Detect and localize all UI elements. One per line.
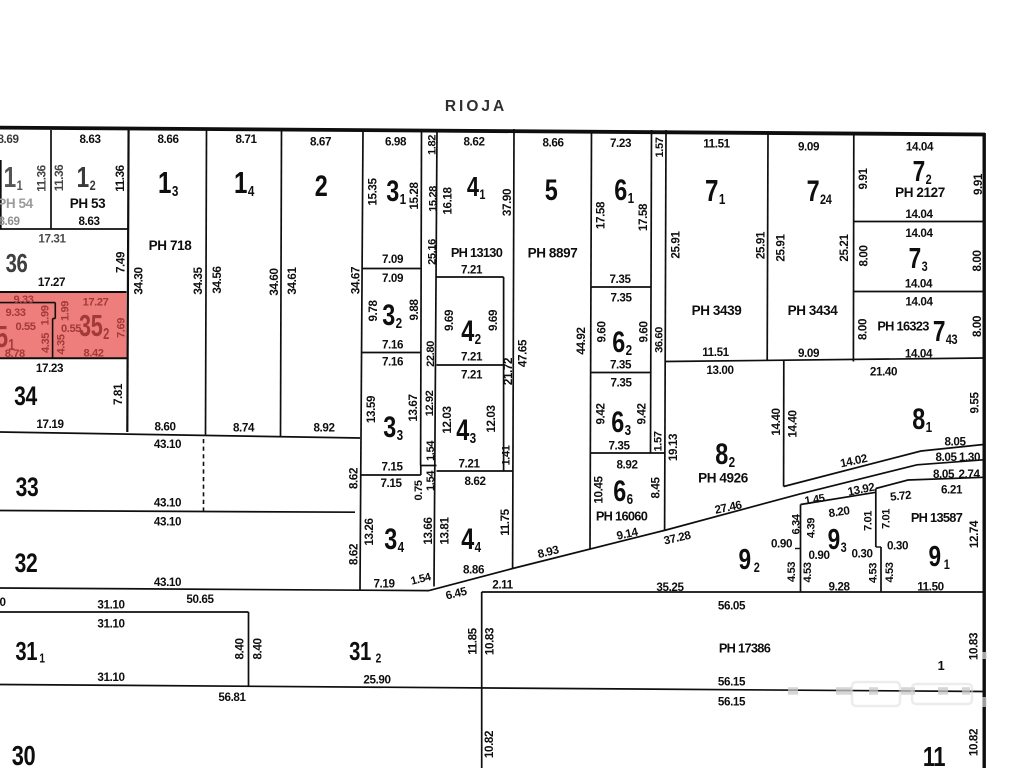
svg-text:50.65: 50.65 bbox=[186, 593, 214, 606]
svg-text:6.98: 6.98 bbox=[385, 136, 407, 149]
svg-text:33: 33 bbox=[16, 473, 39, 503]
svg-text:34.61: 34.61 bbox=[286, 266, 299, 294]
svg-text:9.69: 9.69 bbox=[443, 309, 456, 331]
svg-text:11.75: 11.75 bbox=[499, 508, 512, 535]
svg-text:7.21: 7.21 bbox=[458, 458, 480, 471]
svg-text:17.31: 17.31 bbox=[38, 233, 66, 246]
svg-text:31.10: 31.10 bbox=[97, 671, 124, 684]
svg-text:6.21: 6.21 bbox=[941, 484, 963, 497]
svg-text:7.49: 7.49 bbox=[115, 251, 128, 273]
svg-text:8.60: 8.60 bbox=[154, 421, 175, 434]
svg-text:7.21: 7.21 bbox=[461, 369, 483, 382]
svg-text:15.28: 15.28 bbox=[428, 186, 440, 212]
svg-text:10.83: 10.83 bbox=[484, 627, 497, 655]
svg-text:14.04: 14.04 bbox=[905, 208, 933, 221]
svg-text:9.42: 9.42 bbox=[595, 403, 608, 425]
svg-text:13.67: 13.67 bbox=[407, 394, 420, 421]
svg-text:8.66: 8.66 bbox=[542, 137, 564, 150]
svg-text:8.62: 8.62 bbox=[348, 467, 361, 489]
svg-text:32: 32 bbox=[15, 549, 38, 579]
svg-text:10.83: 10.83 bbox=[968, 632, 981, 660]
svg-text:8.40: 8.40 bbox=[252, 638, 265, 659]
svg-text:8.40: 8.40 bbox=[234, 638, 247, 659]
svg-text:9.42: 9.42 bbox=[636, 403, 649, 425]
svg-text:1.54: 1.54 bbox=[425, 470, 437, 491]
svg-text:56.15: 56.15 bbox=[718, 676, 746, 689]
svg-text:8.00: 8.00 bbox=[857, 319, 870, 340]
svg-text:7.21: 7.21 bbox=[461, 351, 483, 364]
svg-text:11.51: 11.51 bbox=[703, 138, 730, 151]
svg-text:7.35: 7.35 bbox=[610, 359, 632, 372]
svg-text:1.99: 1.99 bbox=[60, 301, 72, 321]
svg-text:PH 13130: PH 13130 bbox=[451, 245, 503, 260]
svg-text:7.01: 7.01 bbox=[863, 511, 875, 531]
svg-text:9.78: 9.78 bbox=[367, 300, 380, 322]
svg-text:8.69: 8.69 bbox=[0, 133, 19, 146]
svg-text:9.91: 9.91 bbox=[857, 168, 870, 190]
svg-text:17.27: 17.27 bbox=[38, 276, 65, 289]
svg-text:7.35: 7.35 bbox=[609, 273, 631, 286]
svg-text:31.10: 31.10 bbox=[97, 599, 124, 612]
svg-text:8.05: 8.05 bbox=[935, 451, 957, 464]
svg-text:7.15: 7.15 bbox=[381, 461, 403, 474]
svg-text:0.90: 0.90 bbox=[771, 538, 792, 551]
svg-text:10.82: 10.82 bbox=[968, 728, 981, 756]
svg-text:4.53: 4.53 bbox=[786, 562, 798, 582]
svg-text:56.15: 56.15 bbox=[718, 696, 746, 709]
svg-text:4.39: 4.39 bbox=[806, 518, 818, 538]
svg-text:56.05: 56.05 bbox=[718, 600, 746, 613]
svg-text:0.30: 0.30 bbox=[887, 540, 908, 553]
svg-text:16.18: 16.18 bbox=[442, 186, 455, 214]
svg-text:11.36: 11.36 bbox=[114, 164, 127, 191]
svg-text:34.56: 34.56 bbox=[211, 265, 224, 293]
svg-text:34.67: 34.67 bbox=[350, 267, 363, 294]
svg-text:13.81: 13.81 bbox=[439, 516, 452, 544]
svg-text:PH 17386: PH 17386 bbox=[719, 641, 771, 656]
svg-text:7.35: 7.35 bbox=[608, 440, 630, 453]
svg-text:8.86: 8.86 bbox=[463, 564, 485, 577]
svg-text:5.72: 5.72 bbox=[889, 489, 912, 504]
svg-text:9.09: 9.09 bbox=[798, 141, 820, 154]
svg-text:8.05: 8.05 bbox=[933, 468, 955, 481]
svg-text:7.09: 7.09 bbox=[382, 253, 404, 266]
svg-text:25.91: 25.91 bbox=[755, 231, 768, 259]
svg-text:4.53: 4.53 bbox=[884, 562, 896, 582]
svg-text:7.16: 7.16 bbox=[382, 339, 404, 352]
svg-text:21.72: 21.72 bbox=[502, 357, 515, 385]
svg-text:0: 0 bbox=[0, 596, 6, 609]
svg-text:11.50: 11.50 bbox=[917, 581, 944, 594]
svg-text:17.19: 17.19 bbox=[36, 418, 64, 431]
svg-text:8.63: 8.63 bbox=[78, 215, 100, 228]
svg-text:14.04: 14.04 bbox=[905, 296, 933, 309]
svg-text:9.55: 9.55 bbox=[969, 392, 982, 414]
svg-text:10.82: 10.82 bbox=[483, 730, 496, 758]
svg-text:13.26: 13.26 bbox=[363, 517, 376, 545]
svg-text:1.57: 1.57 bbox=[653, 431, 665, 451]
svg-text:19.13: 19.13 bbox=[667, 433, 680, 461]
svg-text:37.90: 37.90 bbox=[501, 189, 514, 216]
svg-text:12.03: 12.03 bbox=[441, 405, 454, 433]
svg-text:1.54: 1.54 bbox=[425, 440, 437, 461]
svg-text:25.16: 25.16 bbox=[427, 239, 439, 265]
svg-text:8.71: 8.71 bbox=[235, 133, 257, 146]
svg-text:8.05: 8.05 bbox=[944, 436, 966, 449]
svg-text:1: 1 bbox=[938, 658, 945, 673]
svg-text:8.67: 8.67 bbox=[310, 136, 331, 149]
svg-text:17.23: 17.23 bbox=[36, 362, 64, 375]
svg-text:14.04: 14.04 bbox=[905, 348, 933, 361]
svg-text:14.04: 14.04 bbox=[906, 141, 934, 154]
svg-text:15.35: 15.35 bbox=[367, 177, 380, 205]
svg-text:43.10: 43.10 bbox=[154, 576, 181, 589]
svg-text:14.40: 14.40 bbox=[770, 408, 783, 435]
svg-text:0.55: 0.55 bbox=[61, 323, 81, 335]
svg-text:11.36: 11.36 bbox=[36, 164, 49, 191]
svg-text:1.99: 1.99 bbox=[40, 305, 52, 325]
svg-text:21.40: 21.40 bbox=[870, 366, 897, 379]
svg-text:25.90: 25.90 bbox=[363, 674, 390, 687]
svg-text:10.45: 10.45 bbox=[593, 475, 606, 503]
svg-text:8.00: 8.00 bbox=[858, 245, 871, 266]
svg-text:9.88: 9.88 bbox=[408, 299, 421, 321]
svg-text:PH 16323: PH 16323 bbox=[877, 319, 929, 334]
svg-text:9.60: 9.60 bbox=[596, 321, 609, 342]
svg-text:7.69: 7.69 bbox=[116, 318, 128, 338]
svg-text:7.16: 7.16 bbox=[382, 356, 404, 369]
svg-text:4.35: 4.35 bbox=[56, 334, 68, 354]
svg-text:PH 718: PH 718 bbox=[149, 238, 193, 253]
svg-text:34.35: 34.35 bbox=[192, 266, 205, 294]
svg-text:PH 8897: PH 8897 bbox=[528, 245, 578, 260]
svg-text:13.66: 13.66 bbox=[422, 516, 435, 544]
svg-text:30: 30 bbox=[12, 740, 35, 768]
svg-text:17.27: 17.27 bbox=[83, 297, 109, 309]
svg-text:7.21: 7.21 bbox=[461, 264, 483, 277]
svg-text:8.92: 8.92 bbox=[616, 459, 638, 472]
svg-text:PH 54: PH 54 bbox=[0, 196, 34, 211]
svg-text:43.10: 43.10 bbox=[154, 438, 181, 451]
svg-text:4.35: 4.35 bbox=[40, 333, 52, 353]
svg-text:34.30: 34.30 bbox=[133, 267, 146, 294]
svg-text:47.65: 47.65 bbox=[517, 339, 530, 367]
svg-text:0.55: 0.55 bbox=[15, 321, 35, 333]
svg-text:44.92: 44.92 bbox=[575, 326, 588, 354]
svg-text:12.92: 12.92 bbox=[424, 390, 436, 416]
svg-text:17.58: 17.58 bbox=[595, 201, 608, 229]
svg-text:22.80: 22.80 bbox=[425, 341, 437, 367]
svg-text:PH 53: PH 53 bbox=[70, 196, 106, 211]
svg-text:36: 36 bbox=[6, 249, 28, 278]
svg-text:13.59: 13.59 bbox=[365, 395, 378, 423]
svg-text:9.33: 9.33 bbox=[5, 307, 25, 319]
svg-text:36.60: 36.60 bbox=[654, 327, 666, 353]
svg-text:7.23: 7.23 bbox=[610, 137, 632, 150]
svg-text:4.53: 4.53 bbox=[802, 562, 814, 582]
svg-text:31.10: 31.10 bbox=[97, 618, 124, 631]
svg-text:2.11: 2.11 bbox=[492, 579, 513, 592]
svg-text:8.69: 8.69 bbox=[0, 215, 20, 228]
svg-text:7.35: 7.35 bbox=[610, 377, 632, 390]
svg-text:9.28: 9.28 bbox=[828, 581, 850, 594]
svg-text:43.10: 43.10 bbox=[154, 497, 181, 510]
svg-text:13.00: 13.00 bbox=[706, 364, 733, 377]
svg-text:8.00: 8.00 bbox=[971, 316, 984, 337]
svg-text:1.82: 1.82 bbox=[427, 135, 439, 155]
svg-text:34.60: 34.60 bbox=[268, 268, 281, 295]
svg-text:9.33: 9.33 bbox=[13, 294, 33, 306]
svg-text:8.74: 8.74 bbox=[233, 422, 255, 435]
svg-text:12.03: 12.03 bbox=[485, 404, 498, 432]
svg-text:11.36: 11.36 bbox=[53, 164, 66, 191]
svg-text:8.62: 8.62 bbox=[463, 136, 485, 149]
svg-text:15.28: 15.28 bbox=[408, 181, 421, 209]
svg-text:43.10: 43.10 bbox=[154, 516, 181, 529]
svg-text:RIOJA: RIOJA bbox=[445, 98, 507, 115]
svg-text:8.62: 8.62 bbox=[348, 543, 361, 565]
svg-text:5: 5 bbox=[545, 173, 558, 206]
svg-text:8.92: 8.92 bbox=[313, 422, 335, 435]
svg-text:12.74: 12.74 bbox=[968, 520, 981, 548]
svg-text:14.04: 14.04 bbox=[905, 278, 933, 291]
svg-text:25.91: 25.91 bbox=[670, 230, 683, 258]
svg-text:7.81: 7.81 bbox=[112, 383, 125, 405]
svg-text:17.58: 17.58 bbox=[637, 203, 650, 231]
svg-text:7.01: 7.01 bbox=[881, 509, 893, 529]
svg-text:7.09: 7.09 bbox=[382, 272, 404, 285]
svg-text:0.75: 0.75 bbox=[413, 480, 425, 500]
svg-text:8.66: 8.66 bbox=[157, 133, 179, 146]
svg-text:7.19: 7.19 bbox=[373, 578, 395, 591]
svg-text:25.21: 25.21 bbox=[838, 233, 851, 261]
svg-text:8.42: 8.42 bbox=[83, 348, 103, 360]
svg-text:1.30: 1.30 bbox=[959, 451, 980, 464]
svg-text:9.09: 9.09 bbox=[798, 347, 820, 360]
svg-text:1.41: 1.41 bbox=[501, 445, 513, 465]
svg-text:PH 3439: PH 3439 bbox=[692, 303, 742, 318]
svg-text:6.34: 6.34 bbox=[791, 513, 803, 534]
svg-text:PH 13587: PH 13587 bbox=[911, 510, 963, 525]
svg-text:8.62: 8.62 bbox=[464, 475, 486, 488]
svg-text:1.57: 1.57 bbox=[654, 137, 666, 157]
svg-text:0.90: 0.90 bbox=[808, 549, 829, 562]
svg-text:14.04: 14.04 bbox=[905, 227, 933, 240]
svg-text:PH 3434: PH 3434 bbox=[788, 303, 839, 318]
svg-text:0.30: 0.30 bbox=[851, 548, 872, 561]
svg-text:56.81: 56.81 bbox=[218, 691, 246, 704]
svg-text:2: 2 bbox=[315, 169, 328, 202]
svg-text:2.74: 2.74 bbox=[958, 468, 980, 481]
svg-text:8.00: 8.00 bbox=[971, 250, 984, 271]
svg-text:9.91: 9.91 bbox=[972, 173, 985, 195]
svg-text:14.40: 14.40 bbox=[787, 410, 800, 437]
svg-text:35.25: 35.25 bbox=[656, 581, 684, 594]
svg-text:8.45: 8.45 bbox=[650, 477, 663, 499]
svg-text:PH 16060: PH 16060 bbox=[596, 509, 648, 524]
svg-text:9.69: 9.69 bbox=[487, 309, 500, 331]
svg-text:9.60: 9.60 bbox=[638, 321, 651, 342]
svg-text:11: 11 bbox=[923, 741, 946, 768]
svg-text:4.53: 4.53 bbox=[868, 563, 880, 583]
svg-text:8.63: 8.63 bbox=[79, 133, 101, 146]
svg-text:PH 4926: PH 4926 bbox=[698, 470, 749, 485]
svg-text:7.15: 7.15 bbox=[380, 477, 402, 490]
svg-text:7.35: 7.35 bbox=[610, 292, 632, 305]
svg-text:34: 34 bbox=[14, 382, 37, 412]
svg-text:11.85: 11.85 bbox=[467, 627, 480, 654]
svg-text:25.91: 25.91 bbox=[775, 233, 788, 261]
svg-text:11.51: 11.51 bbox=[702, 346, 729, 359]
